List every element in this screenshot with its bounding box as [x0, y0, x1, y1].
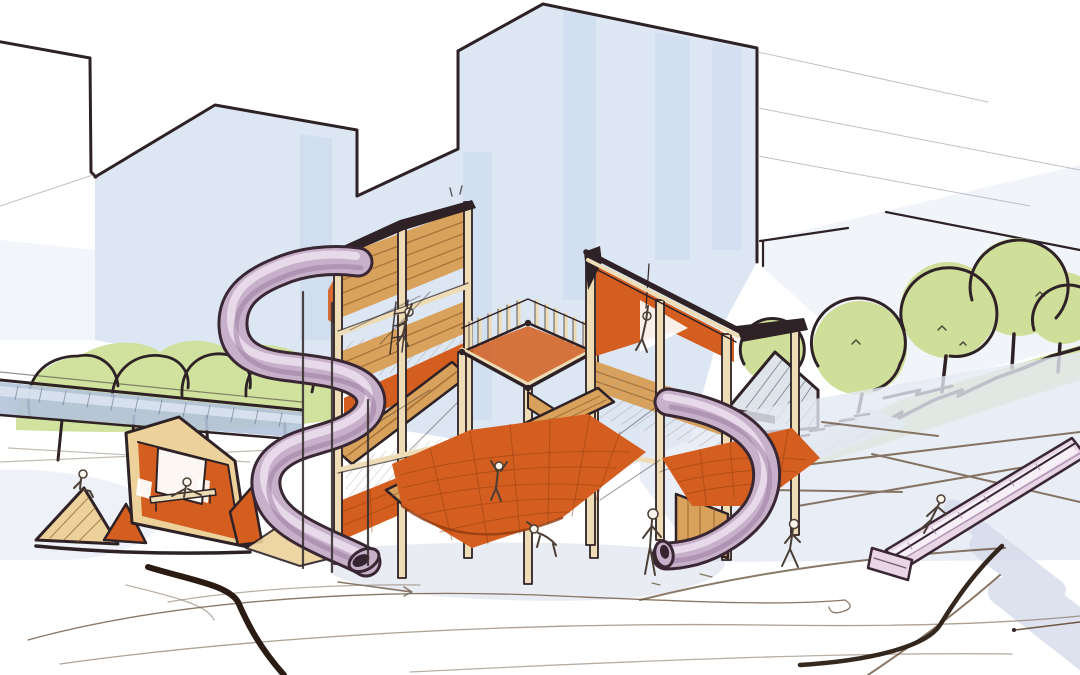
- tree-canopy: [813, 301, 907, 395]
- thick-ground-curve-left: [148, 567, 284, 675]
- line-dot: [1012, 628, 1016, 632]
- sky-wash-left-face: [0, 240, 95, 340]
- sketch-canvas: [0, 0, 1080, 675]
- playground-sketch: [0, 0, 1080, 675]
